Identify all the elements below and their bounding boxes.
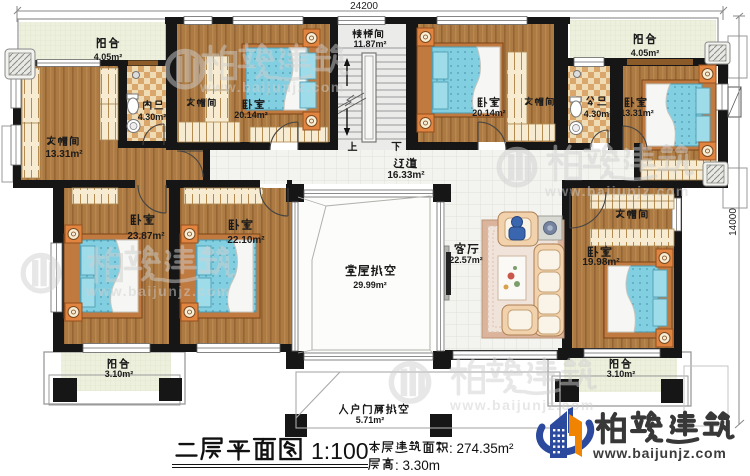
svg-text:16.33m²: 16.33m² [387, 170, 425, 181]
svg-text:13.31m²: 13.31m² [620, 108, 654, 118]
svg-text:29.99m²: 29.99m² [353, 280, 387, 290]
svg-text:3.10m²: 3.10m² [105, 369, 134, 379]
svg-text:14000: 14000 [728, 208, 739, 236]
svg-text:4.30m²: 4.30m² [138, 112, 167, 122]
svg-text:: 3.30m: : 3.30m [395, 458, 440, 473]
svg-text:1:100: 1:100 [311, 438, 369, 464]
svg-text:4.30m²: 4.30m² [584, 109, 613, 119]
svg-text:5.71m²: 5.71m² [356, 415, 385, 425]
svg-text:11.87m²: 11.87m² [353, 39, 386, 49]
svg-text:20.14m²: 20.14m² [234, 110, 268, 120]
svg-text:www.baijunjz.com: www.baijunjz.com [592, 445, 727, 461]
svg-text:20.14m²: 20.14m² [472, 108, 506, 118]
svg-text:19.98m²: 19.98m² [582, 257, 620, 268]
svg-text:22.10m²: 22.10m² [227, 235, 265, 246]
svg-text:4.05m²: 4.05m² [94, 52, 123, 62]
svg-text:www.baijunjz.com: www.baijunjz.com [85, 283, 231, 299]
svg-text:4.05m²: 4.05m² [631, 48, 660, 58]
svg-text:22.57m²: 22.57m² [449, 255, 483, 265]
svg-text:24200: 24200 [350, 1, 378, 12]
svg-text:13.31m²: 13.31m² [45, 149, 83, 160]
svg-text:www.baijunjz.com: www.baijunjz.com [199, 79, 345, 95]
svg-text:www.baijunjz.com: www.baijunjz.com [544, 183, 690, 199]
svg-text:3.10m²: 3.10m² [607, 369, 636, 379]
svg-text:: 274.35m²: : 274.35m² [449, 441, 514, 456]
svg-text:23.87m²: 23.87m² [127, 231, 165, 242]
